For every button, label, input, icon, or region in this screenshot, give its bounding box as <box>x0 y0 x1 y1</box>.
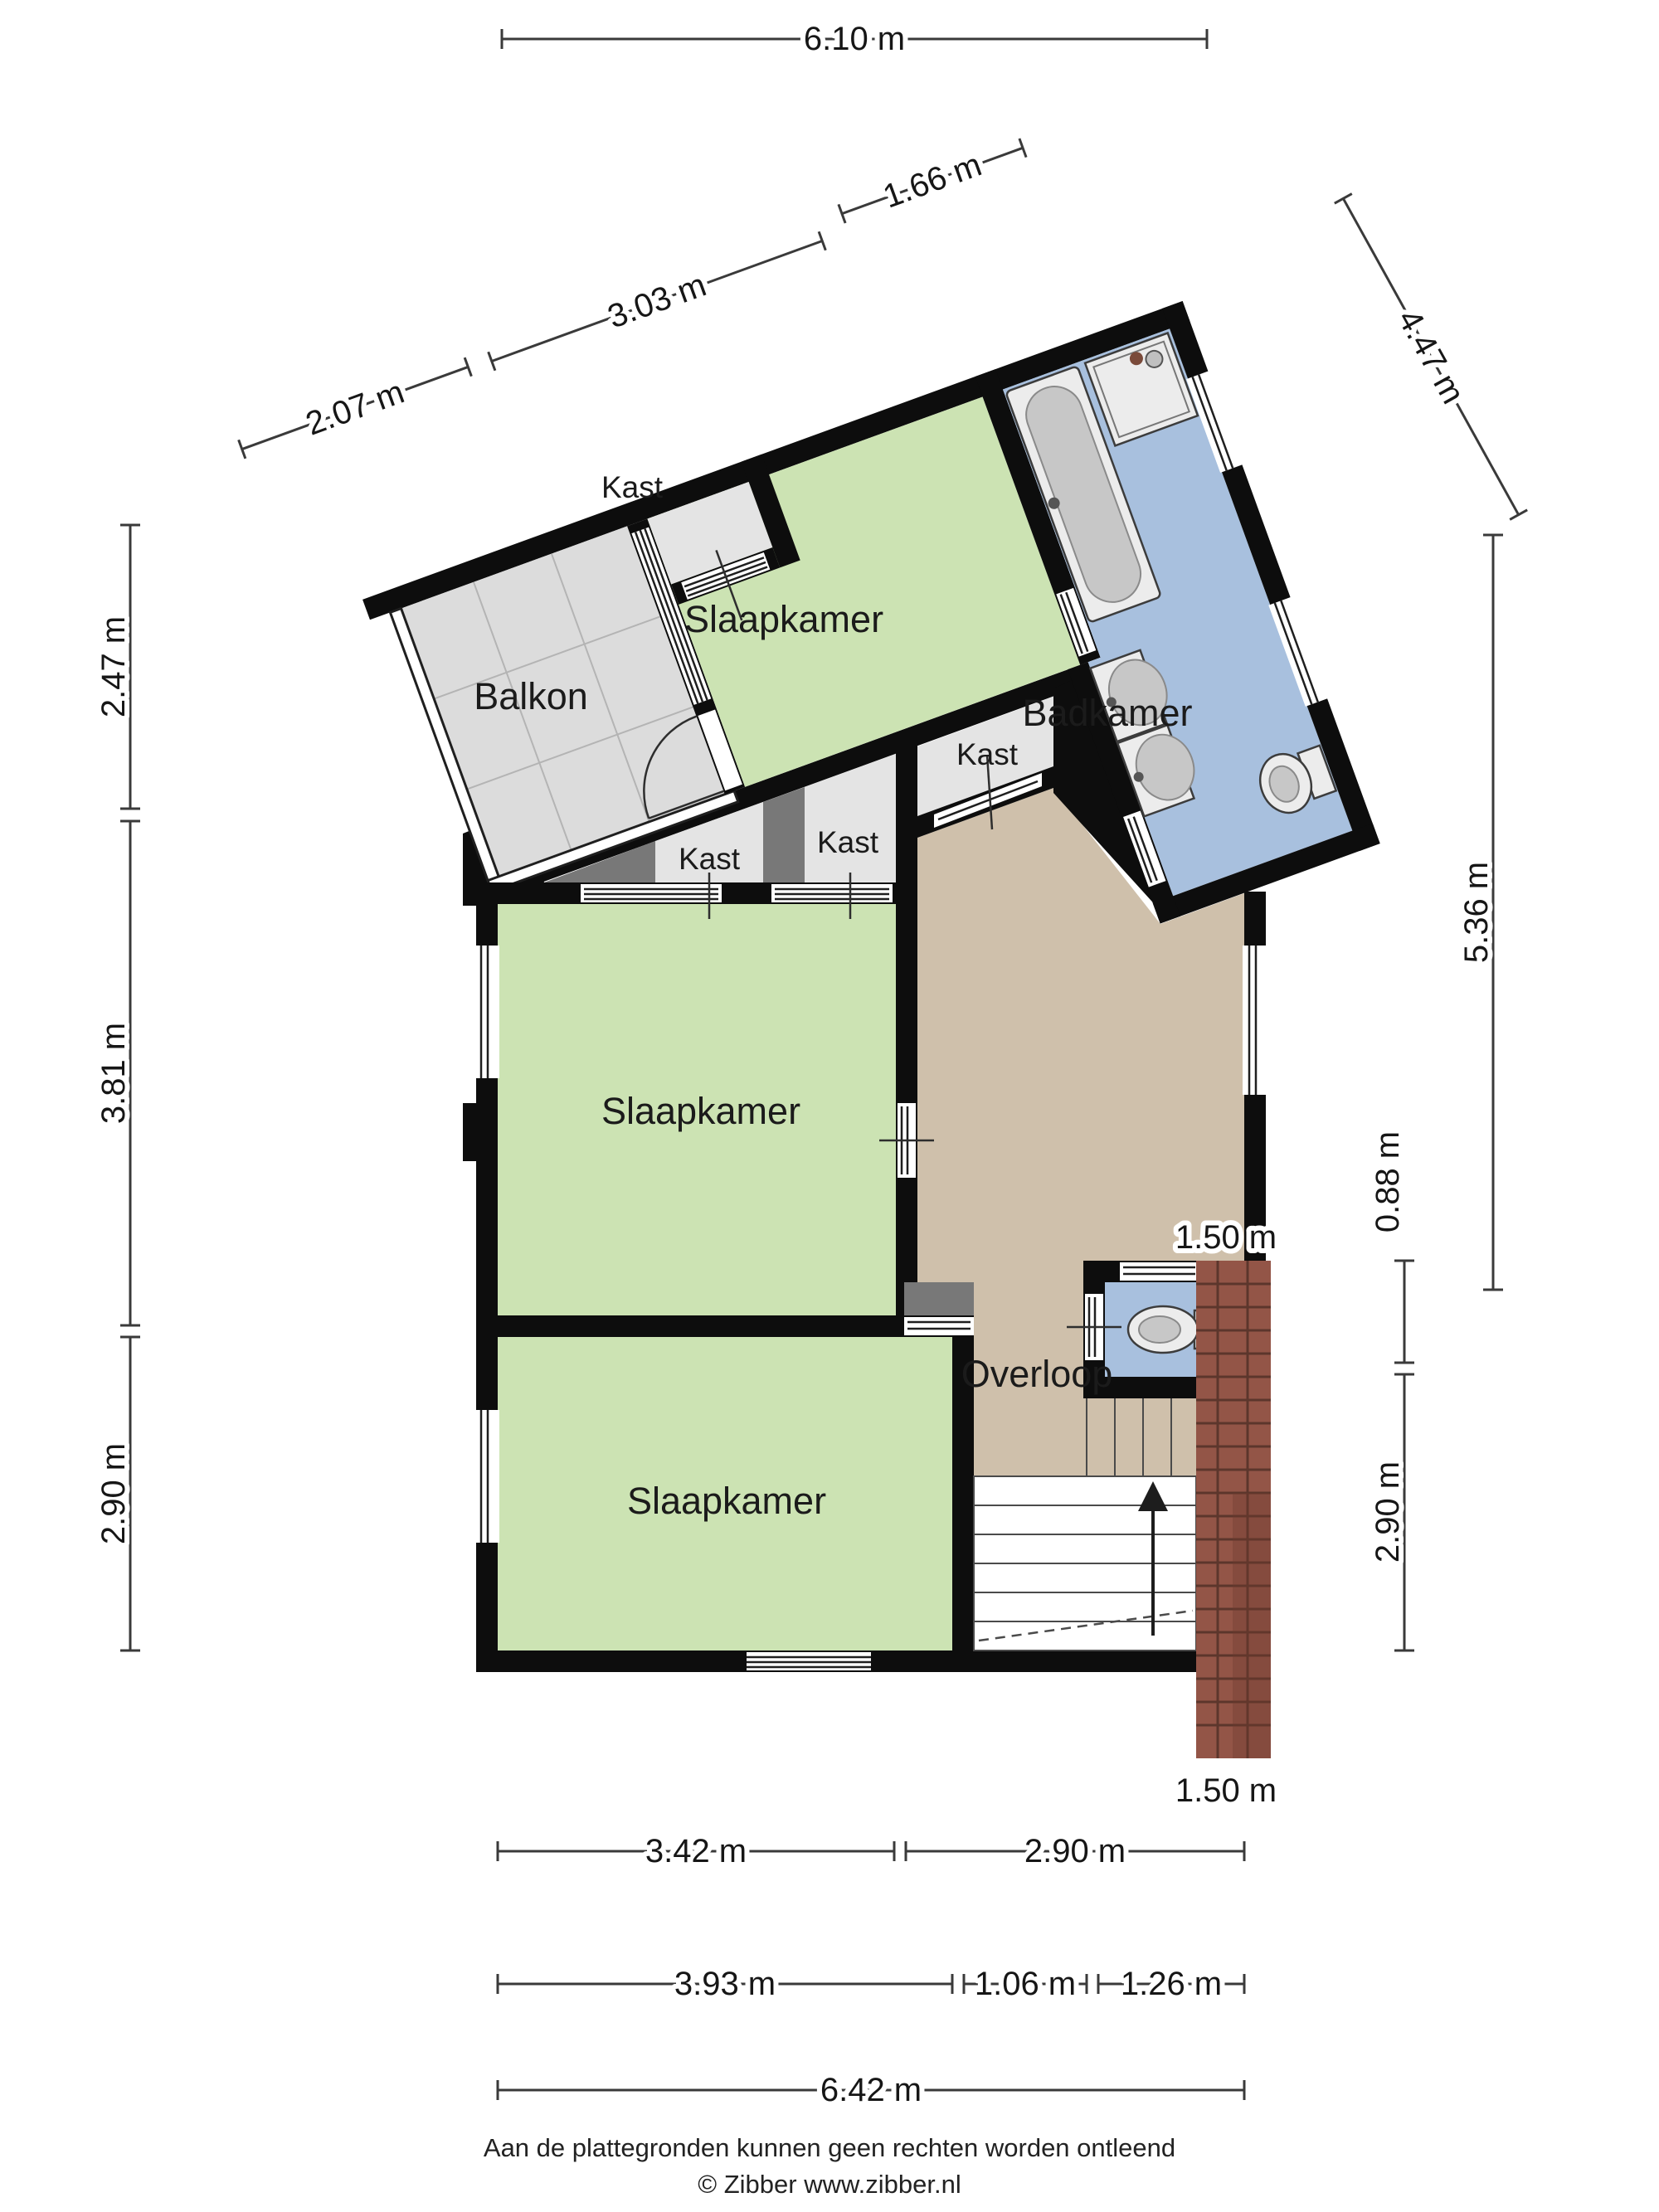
dim-top: 6.10 m <box>502 21 1207 57</box>
svg-text:2.90 m: 2.90 m <box>1370 1461 1406 1563</box>
dim-roof-bottom: 1.50 m <box>1175 1772 1277 1809</box>
dim-right-290: 2.90 m <box>1370 1374 1414 1650</box>
svg-text:6.42 m: 6.42 m <box>820 2072 922 2108</box>
label-slaapkamer-mid: Slaapkamer <box>601 1090 800 1132</box>
svg-text:2.90 m: 2.90 m <box>95 1443 132 1544</box>
dim-right-536: 5.36 m <box>1458 535 1503 1290</box>
dim-bottom-642: 6.42 m <box>498 2072 1244 2108</box>
label-balkon: Balkon <box>474 675 588 717</box>
svg-text:1.26 m: 1.26 m <box>1121 1966 1222 2002</box>
dim-diag-447: 4.47 m <box>1327 190 1535 524</box>
svg-text:0.88 m: 0.88 m <box>1370 1131 1406 1232</box>
dim-bottom-106: 1.06 m <box>964 1966 1087 2002</box>
svg-text:3.42 m: 3.42 m <box>645 1833 747 1869</box>
wall-right-hall <box>1243 892 1267 1261</box>
door-bottomslaap <box>904 1317 974 1335</box>
footer-credit: © Zibber www.zibber.nl <box>698 2170 961 2199</box>
svg-text:4.47 m: 4.47 m <box>1390 304 1472 410</box>
svg-text:1.06 m: 1.06 m <box>975 1966 1076 2002</box>
roof-brick-strip <box>1196 1261 1271 1758</box>
svg-text:1.66 m: 1.66 m <box>878 146 986 215</box>
dim-bottom-290: 2.90 m <box>906 1833 1244 1869</box>
footer-disclaimer: Aan de plattegronden kunnen geen rechten… <box>484 2133 1175 2162</box>
dim-diag-207: 2.07 m <box>236 350 474 467</box>
label-slaapkamer-top: Slaapkamer <box>684 598 883 640</box>
svg-text:5.36 m: 5.36 m <box>1458 862 1495 963</box>
svg-text:2.90 m: 2.90 m <box>1024 1833 1126 1869</box>
window-bottomslaap-left <box>474 1410 499 1543</box>
label-kast-c: Kast <box>956 737 1019 771</box>
svg-text:2.47 m: 2.47 m <box>95 616 132 717</box>
svg-text:2.07 m: 2.07 m <box>301 373 409 442</box>
label-slaapkamer-bottom: Slaapkamer <box>627 1480 826 1522</box>
brick-shade <box>1233 1493 1271 1758</box>
dim-left-247: 2.47 m <box>95 525 140 809</box>
window-midslaap-left <box>474 946 499 1078</box>
wall-left-outer <box>463 882 499 1672</box>
door-threshold <box>904 1282 974 1315</box>
wall-bottom-outer <box>476 1650 1271 1672</box>
dim-bottom-393: 3.93 m <box>498 1966 952 2002</box>
svg-text:3.93 m: 3.93 m <box>674 1966 776 2002</box>
label-overloop: Overloop <box>961 1353 1113 1395</box>
svg-text:3.81 m: 3.81 m <box>95 1023 132 1124</box>
label-kast-b: Kast <box>817 825 879 859</box>
window-bottomslaap <box>747 1652 871 1670</box>
label-kast-a: Kast <box>679 842 741 876</box>
dim-diag-303: 3.03 m <box>485 224 828 378</box>
dim-diag-166: 1.66 m <box>835 131 1029 231</box>
wall-left-pier <box>463 1103 498 1161</box>
svg-text:3.03 m: 3.03 m <box>603 266 711 335</box>
floorplan-canvas: Balkon Kast Slaapkamer Badkamer Kast Kas… <box>0 0 1659 2212</box>
window-hall-right <box>1243 946 1267 1095</box>
dim-right-088: 0.88 m <box>1370 1131 1414 1363</box>
svg-text:6.10 m: 6.10 m <box>804 21 905 57</box>
dim-bottom-342: 3.42 m <box>498 1833 894 1869</box>
dim-left-381: 3.81 m <box>95 821 140 1325</box>
label-badkamer: Badkamer <box>1022 692 1192 734</box>
dim-roof-top: 1.50 m <box>1175 1219 1277 1256</box>
window-toilet <box>1120 1262 1199 1281</box>
divider-ab <box>763 787 805 882</box>
dim-left-290: 2.90 m <box>95 1337 140 1650</box>
dim-bottom-126: 1.26 m <box>1098 1966 1244 2002</box>
floorplan-page: Balkon Kast Slaapkamer Badkamer Kast Kas… <box>0 0 1659 2212</box>
label-kast-top: Kast <box>601 470 664 504</box>
